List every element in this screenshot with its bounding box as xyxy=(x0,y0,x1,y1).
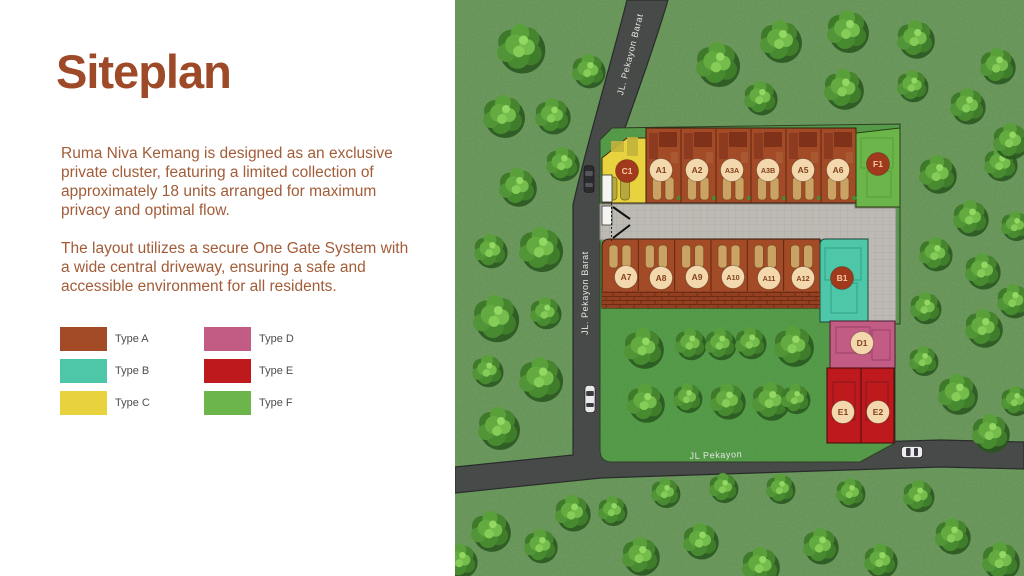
legend-item-type-f: Type F xyxy=(204,391,348,415)
roof-detail xyxy=(694,132,712,147)
carport-icon xyxy=(767,245,776,268)
type-f-swatch xyxy=(204,391,251,415)
type-d-label: Type D xyxy=(259,333,294,345)
unit-marker-a3a: A3A xyxy=(721,159,744,182)
unit-marker-label: A5 xyxy=(798,165,809,175)
type-c-label: Type C xyxy=(115,397,150,409)
type-c-swatch xyxy=(60,391,107,415)
unit-marker-a12: A12 xyxy=(792,267,815,290)
roof-detail xyxy=(627,137,638,156)
car-icon xyxy=(584,166,594,193)
unit-marker-c1: C1 xyxy=(616,160,639,183)
unit-marker-d1: D1 xyxy=(851,332,874,355)
type-e-label: Type E xyxy=(259,365,293,377)
unit-marker-label: A11 xyxy=(763,274,776,283)
type-d-swatch xyxy=(204,327,251,351)
unit-marker-e1: E1 xyxy=(832,401,855,424)
page-title: Siteplan xyxy=(56,44,231,99)
legend-item-type-c: Type C xyxy=(60,391,204,415)
unit-marker-a2: A2 xyxy=(686,159,709,182)
road-label: JL. Pekayon Barat xyxy=(580,251,590,335)
unit-marker-a8: A8 xyxy=(650,267,673,290)
description: Ruma Niva Kemang is designed as an exclu… xyxy=(61,144,417,315)
legend: Type A Type B Type C Type D Type E Type … xyxy=(60,327,348,415)
unit-marker-label: A2 xyxy=(692,165,703,175)
roof-detail xyxy=(799,132,817,147)
unit-marker-a3b: A3B xyxy=(757,159,780,182)
roof-detail xyxy=(824,133,833,159)
unit-marker-label: B1 xyxy=(837,273,848,283)
unit-marker-label: A9 xyxy=(692,272,703,282)
gatehouse-lower xyxy=(602,206,612,225)
roof-detail xyxy=(719,133,728,159)
unit-marker-label: A3A xyxy=(725,166,739,175)
legend-item-type-d: Type D xyxy=(204,327,348,351)
unit-marker-a11: A11 xyxy=(758,267,781,290)
roof-detail xyxy=(764,132,782,147)
unit-marker-label: A7 xyxy=(621,272,632,282)
roof-detail xyxy=(754,133,763,159)
roof-detail xyxy=(611,141,624,152)
carport-icon xyxy=(658,245,667,268)
unit-marker-label: A6 xyxy=(833,165,844,175)
unit-marker-a10: A10 xyxy=(722,266,745,289)
type-a-label: Type A xyxy=(115,333,149,345)
type-b-swatch xyxy=(60,359,107,383)
intro-paragraph: Ruma Niva Kemang is designed as an exclu… xyxy=(61,144,417,220)
carport-icon xyxy=(695,245,704,268)
unit-marker-label: A1 xyxy=(656,165,667,175)
gatehouse-upper xyxy=(602,175,612,202)
unit-marker-label: F1 xyxy=(873,159,883,169)
unit-marker-label: D1 xyxy=(857,338,868,348)
unit-marker-label: C1 xyxy=(622,166,633,176)
roof-detail xyxy=(846,152,853,163)
carport-icon xyxy=(804,245,813,268)
unit-marker-a7: A7 xyxy=(615,266,638,289)
unit-marker-label: A10 xyxy=(726,273,739,282)
unit-marker-a5: A5 xyxy=(792,159,815,182)
unit-marker-b1: B1 xyxy=(831,267,854,290)
carport-icon xyxy=(682,245,691,268)
carport-icon xyxy=(609,245,618,268)
siteplan-slide: Siteplan Ruma Niva Kemang is designed as… xyxy=(0,0,1024,576)
unit-marker-label: A8 xyxy=(656,273,667,283)
legend-item-type-a: Type A xyxy=(60,327,204,351)
unit-marker-label: A3B xyxy=(761,166,775,175)
carport-icon xyxy=(645,245,654,268)
carport-icon xyxy=(754,245,763,268)
unit-marker-label: A12 xyxy=(796,274,809,283)
roof-detail xyxy=(776,152,783,163)
roof-detail xyxy=(811,152,818,163)
type-b-label: Type B xyxy=(115,365,149,377)
unit-marker-label: E2 xyxy=(873,407,884,417)
roof-detail xyxy=(834,132,852,147)
roof-detail xyxy=(789,133,798,159)
type-f-label: Type F xyxy=(259,397,293,409)
roof-detail xyxy=(741,152,748,163)
roof-detail xyxy=(671,152,678,163)
road-label: JL Pekayon xyxy=(689,449,742,461)
carport-icon xyxy=(622,245,631,268)
type-e-swatch xyxy=(204,359,251,383)
unit-marker-f1: F1 xyxy=(867,153,890,176)
siteplan-map: JL. Pekayon BaratJL. Pekayon BaratJL Pek… xyxy=(455,0,1024,576)
brick-band xyxy=(602,291,820,308)
carport-icon xyxy=(718,245,727,268)
unit-marker-label: E1 xyxy=(838,407,849,417)
roof-detail xyxy=(649,133,658,159)
roof-detail xyxy=(729,132,747,147)
legend-item-type-e: Type E xyxy=(204,359,348,383)
car-icon xyxy=(585,386,595,413)
roof-detail xyxy=(659,132,677,147)
unit-marker-a9: A9 xyxy=(686,266,709,289)
type-a-swatch xyxy=(60,327,107,351)
layout-paragraph: The layout utilizes a secure One Gate Sy… xyxy=(61,239,417,296)
carport-icon xyxy=(731,245,740,268)
legend-item-type-b: Type B xyxy=(60,359,204,383)
roof-detail xyxy=(706,152,713,163)
unit-marker-e2: E2 xyxy=(867,401,890,424)
carport-icon xyxy=(791,245,800,268)
roof-detail xyxy=(684,133,693,159)
shrub-icon xyxy=(852,196,857,201)
car-icon xyxy=(902,447,923,458)
left-panel: Siteplan Ruma Niva Kemang is designed as… xyxy=(0,0,455,576)
unit-marker-a6: A6 xyxy=(827,159,850,182)
unit-marker-a1: A1 xyxy=(650,159,673,182)
